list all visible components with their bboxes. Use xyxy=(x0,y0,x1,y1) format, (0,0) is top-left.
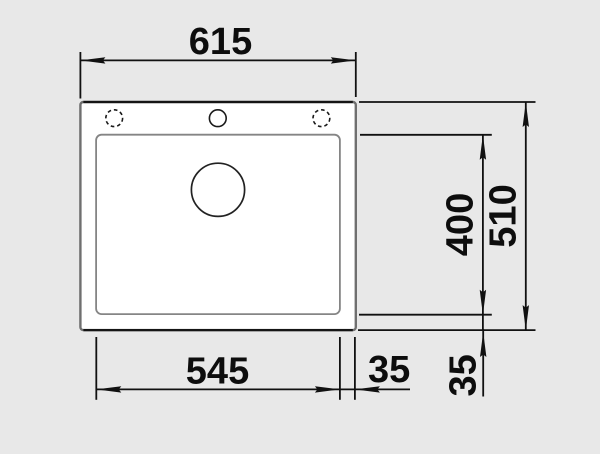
svg-text:510: 510 xyxy=(483,184,525,247)
svg-text:35: 35 xyxy=(368,349,410,391)
svg-text:545: 545 xyxy=(186,351,249,393)
svg-text:35: 35 xyxy=(443,354,485,396)
svg-text:400: 400 xyxy=(440,193,482,256)
svg-text:615: 615 xyxy=(189,21,252,63)
